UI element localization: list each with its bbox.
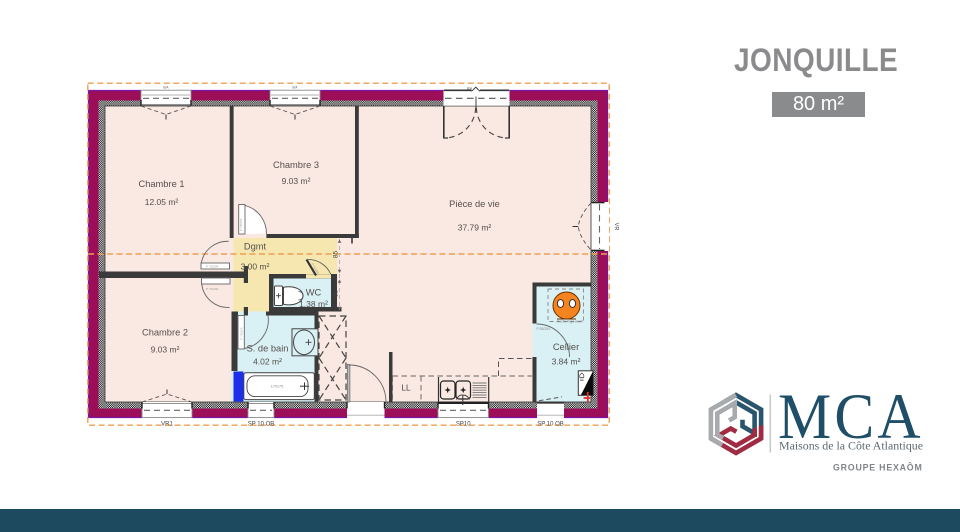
svg-text:B/A: B/A bbox=[292, 86, 298, 90]
svg-text:9.03 m²: 9.03 m² bbox=[151, 345, 180, 355]
svg-text:WC: WC bbox=[306, 288, 322, 298]
svg-text:S. de bain: S. de bain bbox=[247, 344, 289, 354]
svg-text:Chambre 2: Chambre 2 bbox=[142, 328, 188, 338]
svg-text:170x75: 170x75 bbox=[271, 385, 283, 389]
svg-text:GROUPE HEXAÔM: GROUPE HEXAÔM bbox=[833, 462, 923, 473]
svg-text:VR1: VR1 bbox=[161, 422, 173, 428]
svg-text:Cellier: Cellier bbox=[553, 342, 579, 352]
svg-text:SP 10 OB: SP 10 OB bbox=[537, 422, 564, 428]
svg-text:LL: LL bbox=[402, 384, 411, 393]
svg-text:85: 85 bbox=[333, 251, 340, 259]
svg-text:P 73/204: P 73/204 bbox=[239, 327, 243, 340]
svg-text:Seche-linge avant: Seche-linge avant bbox=[557, 320, 583, 324]
svg-text:B/A: B/A bbox=[163, 86, 169, 90]
svg-text:85: 85 bbox=[333, 290, 340, 298]
svg-text:Chambre 1: Chambre 1 bbox=[139, 179, 185, 189]
svg-text:B/A: B/A bbox=[467, 86, 473, 90]
svg-text:Maisons de la Côte Atlantique: Maisons de la Côte Atlantique bbox=[779, 438, 923, 452]
svg-text:9.03 m²: 9.03 m² bbox=[282, 176, 311, 186]
svg-text:1.38 m²: 1.38 m² bbox=[299, 299, 328, 309]
svg-text:P 73/204: P 73/204 bbox=[239, 218, 243, 231]
svg-text:3.00 m²: 3.00 m² bbox=[241, 262, 270, 272]
svg-text:Chambre 3: Chambre 3 bbox=[273, 160, 319, 170]
svg-text:SP10: SP10 bbox=[456, 422, 471, 428]
svg-text:37.79 m²: 37.79 m² bbox=[458, 223, 492, 233]
svg-text:4.02 m²: 4.02 m² bbox=[253, 357, 282, 367]
svg-text:Dgmt: Dgmt bbox=[244, 242, 267, 252]
svg-text:12.05 m²: 12.05 m² bbox=[145, 197, 179, 207]
svg-text:P 83/204: P 83/204 bbox=[537, 327, 551, 331]
svg-text:VR: VR bbox=[613, 223, 619, 231]
svg-text:Pièce de vie: Pièce de vie bbox=[449, 199, 500, 209]
svg-text:SP 10 OB: SP 10 OB bbox=[248, 422, 275, 428]
svg-text:P 73/204: P 73/204 bbox=[206, 265, 219, 269]
svg-text:P 73/204: P 73/204 bbox=[206, 287, 219, 291]
svg-text:3.84 m²: 3.84 m² bbox=[552, 357, 581, 367]
